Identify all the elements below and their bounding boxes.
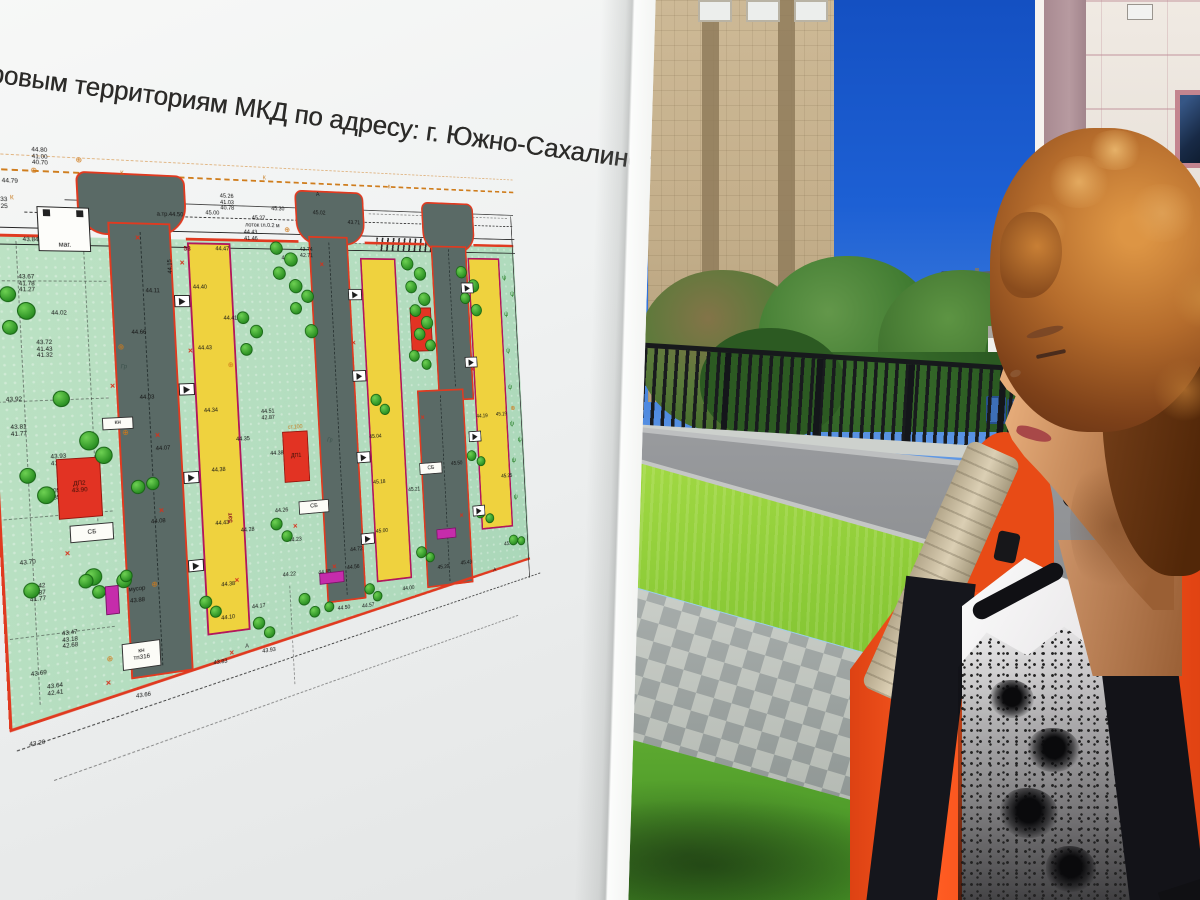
tree-symbol: [409, 304, 421, 317]
tree-symbol: [289, 279, 303, 293]
map-label: 53: [183, 246, 191, 253]
map-label: 43.71: [348, 220, 361, 226]
red-cross-mark: ×: [459, 512, 463, 520]
tree-symbol: [273, 266, 287, 279]
waste-container-symbol: [436, 527, 456, 539]
shrub-symbol: ψ: [510, 291, 514, 297]
map-label: 43.81 41.77: [10, 424, 27, 438]
map-label: 44.66: [131, 330, 146, 336]
map-label: 44.33 44.25: [0, 197, 8, 211]
entrance-arrow-icon: [361, 454, 367, 461]
window: [794, 0, 828, 22]
shrub-symbol: ψ: [502, 275, 506, 282]
map-label: 43.83: [213, 659, 227, 667]
red-cross-mark: ×: [180, 259, 185, 267]
entrance-marker: [361, 532, 375, 545]
photo-scene: ровым территориям МКД по адресу: г. Южно…: [0, 0, 1200, 900]
survey-point-icon: ⊕: [228, 362, 234, 369]
entrance-arrow-icon: [193, 562, 200, 570]
entrance-marker: [348, 289, 362, 300]
map-label: 44.15: [167, 259, 174, 273]
map-building-label: СБ: [299, 499, 330, 515]
map-label: 45.26 41.03 40.78: [220, 194, 235, 212]
entrance-arrow-icon: [476, 507, 481, 514]
map-label: а.тр.44.50: [157, 212, 184, 219]
map-label: 45.02: [313, 211, 326, 217]
entrance-marker: [461, 283, 474, 294]
red-cross-mark: ×: [110, 382, 116, 391]
map-building-label: ДП2 43.90: [56, 457, 103, 520]
entrance-arrow-icon: [352, 291, 358, 298]
entrance-marker: [183, 471, 199, 484]
map-label: 43.93: [262, 647, 276, 655]
map-label: 45.00: [205, 211, 219, 217]
red-cross-mark: ×: [351, 339, 356, 347]
window: [698, 0, 732, 22]
entrance-arrow-icon: [472, 433, 477, 440]
entrance-arrow-icon: [179, 297, 186, 304]
site-plan-map: 44.73 40.82 40.5544.80 41.00 40.7044.794…: [0, 140, 541, 787]
shrub-symbol: ψ: [508, 384, 512, 391]
tree-symbol: [17, 302, 37, 320]
map-label: 45.25: [501, 474, 512, 480]
survey-point-icon: ⊕: [510, 405, 515, 412]
red-cross-mark: ×: [319, 261, 324, 269]
map-label: 44.03: [140, 395, 155, 402]
red-cross-mark: ×: [159, 506, 164, 515]
entrance-marker: [465, 357, 478, 368]
survey-point-icon: ⊕: [30, 167, 37, 175]
entrance-marker: [179, 383, 195, 396]
entrance-marker: [352, 370, 366, 382]
building-window-row: [650, 0, 834, 24]
map-label: 43.74 42.71: [300, 247, 314, 259]
map-label: 43.67 41.78 41.27: [18, 274, 35, 293]
tree-symbol: [2, 320, 19, 335]
tree-symbol: [304, 324, 318, 338]
tree-symbol: [414, 328, 426, 341]
survey-point-icon: ⊕: [151, 581, 158, 589]
entrance-marker: [174, 295, 190, 307]
red-cross-mark: ×: [155, 431, 160, 440]
map-label: 44.02: [51, 311, 67, 318]
shrub-symbol: ψ: [514, 493, 518, 500]
entrance-marker: [469, 431, 482, 442]
map-label: 44.34: [204, 408, 218, 415]
map-label: К: [10, 195, 14, 202]
tree-symbol: [455, 266, 467, 279]
map-label: 44.51 42.87: [261, 409, 275, 421]
entrance-marker: [472, 505, 485, 517]
map-label: 44.11: [145, 289, 160, 295]
map-label: 45.30: [271, 207, 285, 213]
tree-symbol: [401, 257, 414, 271]
map-label: 44.47: [215, 247, 229, 253]
map-label: К: [388, 185, 391, 191]
tree-symbol: [405, 281, 417, 294]
map-label: 44.07: [156, 446, 171, 453]
map-building-label: маг.: [36, 206, 91, 252]
map-building-label: СБ: [419, 462, 442, 475]
map-building-label: кн: [102, 416, 134, 430]
tree-symbol: [237, 311, 250, 324]
red-cross-mark: ×: [135, 234, 140, 243]
red-cross-mark: ×: [420, 414, 424, 422]
map-label: А: [245, 644, 249, 650]
map-label: 5эт: [227, 512, 234, 523]
map-label: 44.19: [476, 414, 487, 420]
hair-highlight: [1126, 184, 1198, 242]
window: [746, 0, 780, 22]
red-cross-mark: ×: [188, 347, 193, 355]
information-board: ровым территориям МКД по адресу: г. Южно…: [0, 0, 660, 900]
lace-motif: [1046, 846, 1096, 892]
map-label: 44.79: [2, 178, 19, 185]
survey-point-icon: ⊕: [118, 344, 125, 352]
map-label: 44.43 41.46: [244, 230, 258, 242]
tree-symbol: [414, 267, 427, 281]
entrance-arrow-icon: [465, 285, 470, 292]
lace-motif: [1028, 728, 1080, 772]
woman: [850, 120, 1200, 900]
survey-point-icon: ⊕: [75, 156, 82, 164]
map-label: 45.27: [252, 216, 266, 222]
map-label: 45.19: [496, 412, 507, 418]
map-label: 45.50: [451, 461, 463, 467]
map-label: 43.72 41.43 41.32: [36, 340, 53, 360]
tree-symbol: [270, 241, 284, 255]
shrub-symbol: ψ: [506, 348, 510, 355]
red-cross-mark: ×: [293, 522, 298, 530]
map-label: Гр: [327, 438, 333, 444]
map-label: 45.21: [408, 487, 420, 494]
map-label: 44.26: [275, 508, 289, 515]
map-label: 44.43: [198, 346, 212, 352]
red-cross-mark: ×: [234, 576, 239, 585]
tree-symbol: [421, 316, 434, 330]
map-label: 44.38: [212, 467, 226, 474]
map-label: А: [316, 192, 320, 198]
entrance-arrow-icon: [365, 535, 371, 542]
map-label: 43.64 42.41: [47, 683, 64, 698]
map-building-label: ДП1: [282, 430, 310, 482]
red-cross-mark: ×: [65, 549, 71, 558]
ac-unit: [1127, 4, 1153, 20]
tree-symbol: [471, 304, 483, 316]
map-label: Гр: [121, 364, 128, 370]
survey-point-icon: ⊕: [122, 429, 129, 437]
entrance-arrow-icon: [468, 359, 473, 366]
lace-motif: [990, 680, 1034, 718]
red-cross-mark: ×: [332, 563, 337, 571]
map-label: 44.40: [193, 285, 207, 291]
entrance-arrow-icon: [188, 474, 195, 482]
tree-symbol: [250, 325, 264, 339]
hair-highlight: [1086, 130, 1144, 170]
map-label: 44.41: [223, 316, 237, 322]
map-label: К: [120, 171, 124, 177]
map-label: 43.47 43.18 42.68: [62, 630, 79, 651]
map-label: 44.08: [151, 518, 166, 525]
survey-point-icon: ⊕: [284, 227, 290, 234]
entrance-marker: [188, 559, 204, 573]
survey-point-icon: ⊕: [106, 655, 113, 664]
shrub-symbol: ψ: [512, 457, 516, 464]
map-label: 43.20: [29, 740, 45, 749]
shadow: [600, 778, 890, 900]
shrub-symbol: ψ: [510, 421, 514, 428]
map-label: 43.66: [136, 692, 151, 701]
map-label: К: [263, 176, 266, 182]
lace-motif: [1000, 788, 1058, 838]
tree-symbol: [418, 292, 431, 305]
tree-symbol: [284, 252, 298, 266]
shrub-symbol: ψ: [504, 311, 508, 318]
map-label: 44.35: [236, 436, 250, 443]
entrance-arrow-icon: [356, 372, 362, 379]
entrance-arrow-icon: [183, 385, 190, 393]
red-cross-mark: ×: [106, 679, 112, 688]
shrub-symbol: ψ: [518, 436, 522, 443]
map-label: 44.80 41.00 40.70: [31, 147, 48, 167]
red-cross-mark: ×: [229, 649, 234, 658]
tree-symbol: [301, 290, 314, 303]
map-label: 44.38: [270, 451, 284, 458]
map-label: 43.92: [6, 397, 23, 404]
entrance-marker: [356, 451, 370, 463]
tree-symbol: [425, 339, 436, 351]
map-label: 45.18: [373, 479, 386, 486]
map-building-label: кн тп316: [122, 639, 162, 671]
map-label: 43.84: [22, 237, 38, 244]
tree-symbol: [290, 302, 302, 314]
map-label: А: [493, 568, 496, 574]
map-label: 45.04: [369, 434, 382, 440]
tree-symbol: [0, 286, 17, 302]
waste-container-symbol: [105, 585, 120, 615]
